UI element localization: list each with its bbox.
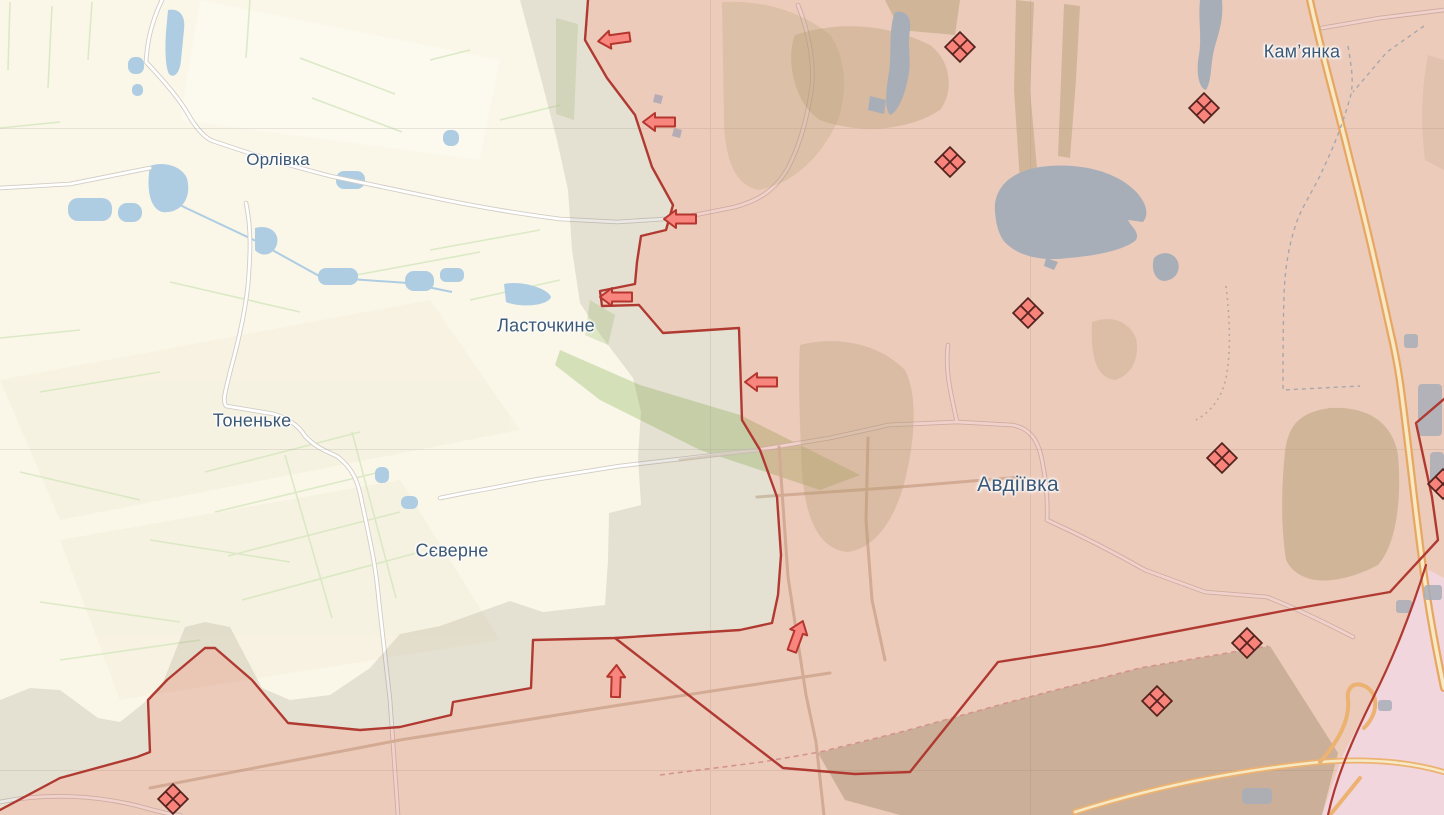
clash-marker-icon[interactable] <box>158 784 188 814</box>
attack-arrow-icon[interactable] <box>745 373 777 391</box>
clash-marker-icon[interactable] <box>1428 469 1444 499</box>
attack-arrow-icon[interactable] <box>600 288 632 306</box>
attack-arrow-icon[interactable] <box>783 618 811 654</box>
clash-marker-icon[interactable] <box>945 32 975 62</box>
clash-marker-icon[interactable] <box>1232 628 1262 658</box>
place-label-tonenke: Тоненьке <box>213 411 292 432</box>
place-label-orlivka: Орлівка <box>246 150 310 170</box>
map-canvas[interactable]: ОрлівкаЛасточкинеТоненькеСєвернеАвдіївка… <box>0 0 1444 815</box>
clash-marker-icon[interactable] <box>1189 93 1219 123</box>
markers-layer <box>0 0 1444 815</box>
attack-arrow-icon[interactable] <box>597 28 631 50</box>
place-label-lastochkyne: Ласточкине <box>497 316 595 337</box>
attack-arrow-icon[interactable] <box>664 210 696 228</box>
place-label-avdiivka: Авдіївка <box>977 473 1059 497</box>
clash-marker-icon[interactable] <box>935 147 965 177</box>
clash-marker-icon[interactable] <box>1142 686 1172 716</box>
place-label-sieverne: Сєверне <box>416 541 489 562</box>
attack-arrow-icon[interactable] <box>606 665 625 698</box>
attack-arrow-icon[interactable] <box>643 113 675 131</box>
clash-marker-icon[interactable] <box>1013 298 1043 328</box>
place-label-kamianka: Кам’янка <box>1264 42 1340 63</box>
clash-marker-icon[interactable] <box>1207 443 1237 473</box>
